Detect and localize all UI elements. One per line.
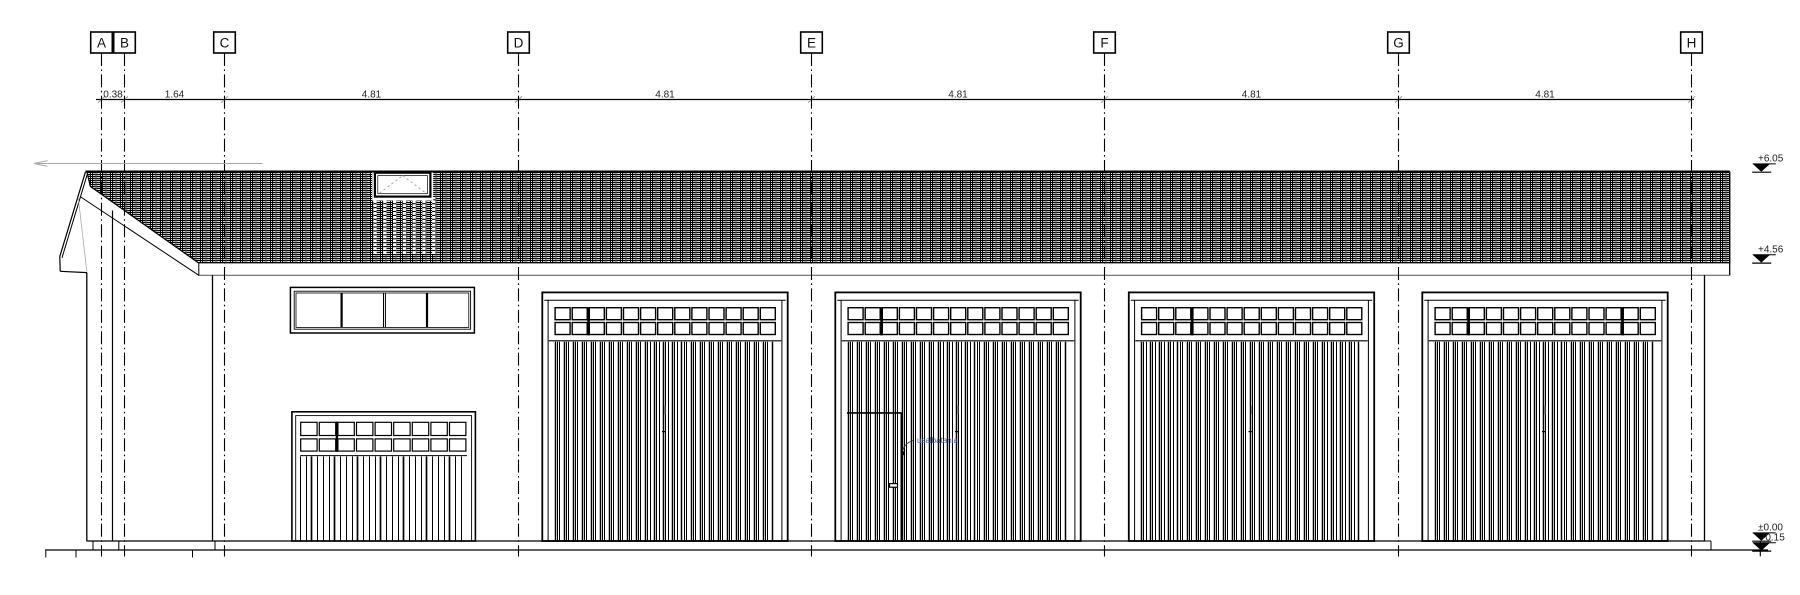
svg-text:4.81: 4.81 bbox=[948, 90, 968, 101]
svg-text:4.81: 4.81 bbox=[655, 90, 675, 101]
svg-text:4.81: 4.81 bbox=[1242, 90, 1262, 101]
svg-text:4.81: 4.81 bbox=[1535, 90, 1555, 101]
svg-text:C: C bbox=[220, 36, 230, 51]
svg-text:E: E bbox=[807, 36, 816, 51]
svg-text:B: B bbox=[120, 36, 129, 51]
svg-text:4.81: 4.81 bbox=[362, 90, 382, 101]
svg-text:1.64: 1.64 bbox=[165, 90, 185, 101]
svg-text:0.38: 0.38 bbox=[103, 90, 123, 101]
svg-text:D: D bbox=[514, 36, 524, 51]
svg-text:+6.05: +6.05 bbox=[1758, 154, 1784, 165]
svg-text:-0.15: -0.15 bbox=[1762, 533, 1785, 544]
svg-text:F: F bbox=[1100, 36, 1108, 51]
svg-text:G: G bbox=[1393, 36, 1404, 51]
svg-text:+4.56: +4.56 bbox=[1758, 245, 1784, 256]
svg-text:usalbatania: usalbatania bbox=[917, 436, 958, 445]
svg-text:A: A bbox=[97, 36, 106, 51]
svg-text:H: H bbox=[1687, 36, 1697, 51]
